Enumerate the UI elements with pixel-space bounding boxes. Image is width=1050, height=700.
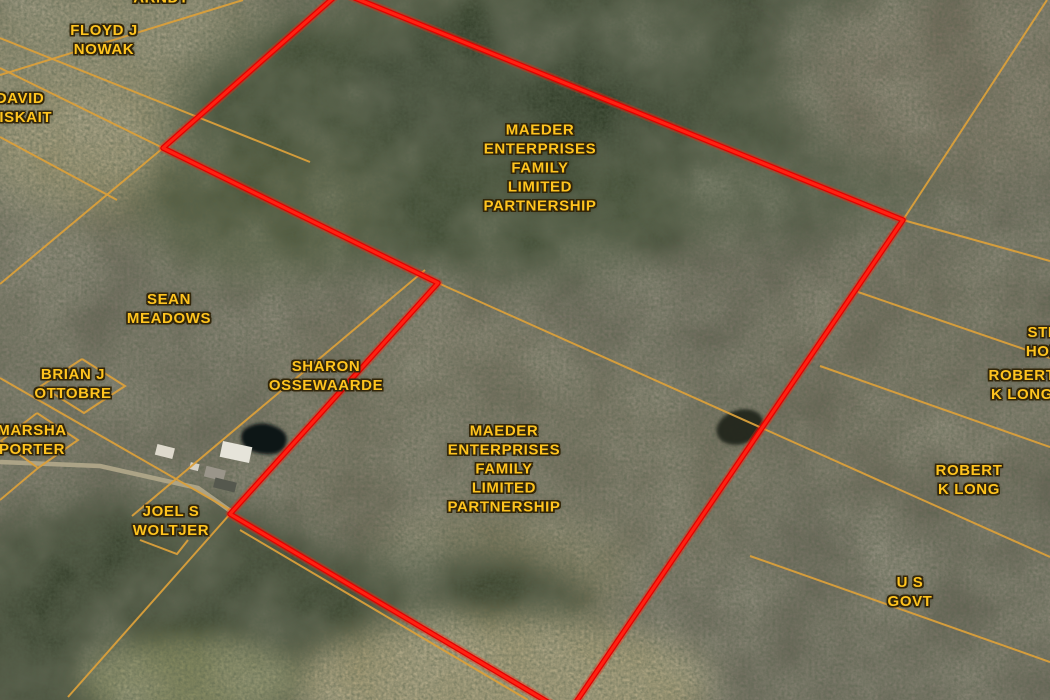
parcel-owner-label-line: ENTERPRISES bbox=[484, 140, 597, 159]
parcel-owner-label-line: LIMITED bbox=[448, 479, 561, 498]
map-canvas[interactable]: ARNDTFLOYD JNOWAKDAVIDRISKAITMAEDERENTER… bbox=[0, 0, 1050, 700]
parcel-owner-label-line: OSSEWAARDE bbox=[269, 376, 383, 395]
parcel-owner-label-line: JOEL S bbox=[133, 502, 209, 521]
parcel-owner-label-floyd-j-nowak[interactable]: FLOYD JNOWAK bbox=[70, 21, 138, 59]
parcel-owner-label-line: MAEDER bbox=[448, 422, 561, 441]
parcel-owner-label-line: LIMITED bbox=[484, 178, 597, 197]
parcel-owner-label-line: DAVID bbox=[0, 89, 52, 108]
parcel-owner-label-sharon-ossewaarde[interactable]: SHARONOSSEWAARDE bbox=[269, 357, 383, 395]
parcel-boundary-line bbox=[903, 220, 1050, 261]
parcel-owner-label-us-govt[interactable]: U SGOVT bbox=[888, 573, 933, 611]
parcel-owner-label-brian-j-ottobre[interactable]: BRIAN JOTTOBRE bbox=[34, 365, 111, 403]
parcel-owner-label-line: ROBERT bbox=[989, 366, 1050, 385]
parcel-owner-label-maeder-south[interactable]: MAEDERENTERPRISESFAMILYLIMITEDPARTNERSHI… bbox=[448, 422, 561, 517]
parcel-boundary-line bbox=[903, 0, 1047, 220]
parcel-boundary-line bbox=[0, 468, 38, 500]
parcel-owner-label-sean-meadows[interactable]: SEANMEADOWS bbox=[127, 290, 211, 328]
parcel-owner-label-robert-k-long-lower[interactable]: ROBERTK LONG bbox=[936, 461, 1003, 499]
parcel-owner-label-line: BRIAN J bbox=[34, 365, 111, 384]
parcel-owner-label-line: FAMILY bbox=[448, 460, 561, 479]
parcel-owner-label-marsha-porter[interactable]: MARSHAPORTER bbox=[0, 421, 67, 459]
parcel-owner-label-david-riskait[interactable]: DAVIDRISKAIT bbox=[0, 89, 52, 127]
parcel-boundary-line bbox=[0, 137, 117, 200]
parcel-owner-label-line: HOE bbox=[1026, 342, 1050, 361]
parcel-owner-label-line: PORTER bbox=[0, 440, 67, 459]
parcel-owner-label-ste-hoe[interactable]: STEHOE bbox=[1026, 323, 1050, 361]
parcel-owner-label-line: PARTNERSHIP bbox=[484, 197, 597, 216]
parcel-boundary-line bbox=[858, 292, 1050, 358]
parcel-boundary-line bbox=[240, 530, 528, 700]
parcel-owner-label-line: U S bbox=[888, 573, 933, 592]
parcel-owner-label-line: ARNDT bbox=[133, 0, 189, 8]
parcel-owner-label-line: ENTERPRISES bbox=[448, 441, 561, 460]
parcel-owner-label-line: SHARON bbox=[269, 357, 383, 376]
parcel-owner-label-line: PARTNERSHIP bbox=[448, 498, 561, 517]
parcel-boundary-line bbox=[68, 514, 230, 697]
parcel-owner-label-line: STE bbox=[1026, 323, 1050, 342]
parcel-owner-label-arndt[interactable]: ARNDT bbox=[133, 0, 189, 8]
parcel-owner-label-line: RISKAIT bbox=[0, 108, 52, 127]
parcel-owner-label-line: ROBERT bbox=[936, 461, 1003, 480]
parcel-owner-label-line: FLOYD J bbox=[70, 21, 138, 40]
parcel-owner-label-line: MAEDER bbox=[484, 121, 597, 140]
parcel-owner-label-line: OTTOBRE bbox=[34, 384, 111, 403]
parcel-owner-label-line: K LONG bbox=[989, 385, 1050, 404]
parcel-owner-label-joel-s-woltjer[interactable]: JOEL SWOLTJER bbox=[133, 502, 209, 540]
parcel-boundary-line bbox=[0, 148, 163, 284]
parcel-owner-label-maeder-north[interactable]: MAEDERENTERPRISESFAMILYLIMITEDPARTNERSHI… bbox=[484, 121, 597, 216]
parcel-owner-label-line: MEADOWS bbox=[127, 309, 211, 328]
parcel-owner-label-line: NOWAK bbox=[70, 40, 138, 59]
parcel-owner-label-line: SEAN bbox=[127, 290, 211, 309]
selected-parcel-glow bbox=[163, 0, 903, 700]
parcel-owner-label-line: MARSHA bbox=[0, 421, 67, 440]
parcel-owner-label-line: WOLTJER bbox=[133, 521, 209, 540]
parcel-owner-label-line: K LONG bbox=[936, 480, 1003, 499]
parcel-owner-label-line: GOVT bbox=[888, 592, 933, 611]
selected-parcel[interactable] bbox=[163, 0, 903, 700]
parcel-owner-label-robert-k-long-upper[interactable]: ROBERTK LONG bbox=[989, 366, 1050, 404]
parcel-owner-label-line: FAMILY bbox=[484, 159, 597, 178]
selected-parcel-outline bbox=[163, 0, 903, 700]
parcel-boundary-line bbox=[140, 540, 188, 554]
